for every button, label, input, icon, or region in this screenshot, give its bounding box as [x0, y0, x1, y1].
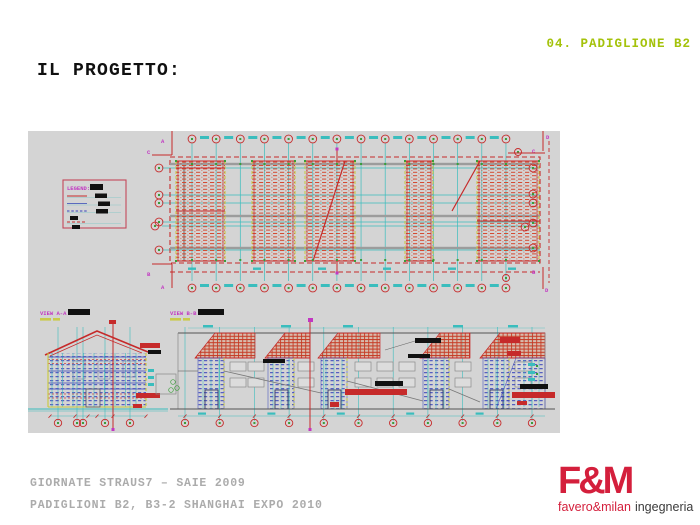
- grid-circle-letter: [219, 422, 221, 424]
- grid-circle-letter: [336, 138, 338, 140]
- cad-rect: [200, 136, 209, 139]
- cad-rect: [505, 163, 507, 165]
- grid-circle-letter: [524, 226, 526, 228]
- grid-circle-letter: [457, 138, 459, 140]
- elevation-view-a: VIEW A-A: [28, 309, 168, 431]
- grid-circle-letter: [496, 422, 498, 424]
- scale-note: [183, 318, 190, 321]
- tree-symbol: [171, 380, 176, 385]
- cjk-text-block: [263, 359, 285, 363]
- cad-rect: [433, 259, 435, 261]
- grid-circle-letter: [481, 138, 483, 140]
- cad-rect: [432, 160, 434, 162]
- section-tag: 04. PADIGLIONE B2: [546, 37, 691, 51]
- level-mark-red: [512, 392, 555, 398]
- grid-circle-letter: [505, 277, 507, 279]
- company-logo: F&M favero&milaningegneria: [558, 462, 700, 514]
- cjk-text-block: [148, 350, 161, 354]
- grid-circle-letter: [408, 138, 410, 140]
- grid-circle-letter: [336, 287, 338, 289]
- grid-circle-letter: [288, 422, 290, 424]
- grid-circle-letter: [158, 194, 160, 196]
- tree-symbol: [169, 388, 174, 393]
- cad-rect: [417, 136, 426, 139]
- dim-text: [198, 413, 206, 415]
- grid-circle-letter: [532, 193, 534, 195]
- logo-wordmark: favero&milaningegneria: [558, 500, 700, 514]
- window: [455, 378, 471, 387]
- cad-rect: [248, 284, 257, 287]
- level-mark-red: [507, 351, 521, 356]
- footer: GIORNATE STRAUS7 – SAIE 2009 PADIGLIONI …: [30, 473, 323, 517]
- grid-circle-letter: [531, 422, 533, 424]
- section-marker: C: [532, 148, 536, 155]
- grid-circle-letter: [129, 422, 131, 424]
- grid-circle-letter: [358, 422, 360, 424]
- cad-rect: [490, 284, 499, 287]
- grid-circle-letter: [239, 287, 241, 289]
- cad-rect: [272, 136, 281, 139]
- cad-rect: [215, 163, 217, 165]
- cad-rect: [175, 260, 177, 262]
- scale-note: [40, 318, 51, 321]
- grid-circle-letter: [215, 138, 217, 140]
- roof-panel-hatch: [305, 161, 355, 261]
- cjk-text-block: [90, 184, 103, 190]
- view-b-label: VIEW B-B: [170, 310, 197, 317]
- grid-circle-letter: [433, 138, 435, 140]
- section-marker: A: [161, 284, 165, 291]
- dim-text: [281, 325, 291, 327]
- grid-circle-letter: [481, 287, 483, 289]
- grid-circle-letter: [57, 422, 59, 424]
- section-marker: A: [161, 138, 165, 145]
- window: [298, 362, 314, 371]
- cad-rect: [490, 136, 499, 139]
- cjk-text-block: [375, 381, 403, 386]
- grid-circle-letter: [191, 287, 193, 289]
- grid-circle-letter: [505, 138, 507, 140]
- cjk-text-block: [72, 225, 80, 229]
- grid-circle-letter: [215, 287, 217, 289]
- grid-circle-letter: [408, 287, 410, 289]
- grid-circle-letter: [312, 138, 314, 140]
- cad-rect: [224, 160, 226, 162]
- level-mark-red: [345, 389, 407, 395]
- plan-dim-text: [448, 268, 456, 270]
- grid-circle-letter: [532, 247, 534, 249]
- plan-dim-text: [188, 268, 196, 270]
- cad-rect: [251, 260, 253, 262]
- dim-text: [148, 369, 154, 372]
- legend-box: LEGEND:: [63, 180, 126, 229]
- grid-circle-letter: [312, 287, 314, 289]
- cad-rect: [345, 136, 354, 139]
- cad-rect: [360, 163, 362, 165]
- cad-rect: [384, 163, 386, 165]
- grid-circle-letter: [191, 138, 193, 140]
- cad-rect: [239, 259, 241, 261]
- scale-note: [53, 318, 60, 321]
- cad-rect: [224, 284, 233, 287]
- slide: 04. PADIGLIONE B2 IL PROGETTO: ACBADCBDL…: [0, 0, 700, 525]
- roof-panel-elev: [318, 333, 380, 358]
- cad-rect: [321, 136, 330, 139]
- cad-rect: [354, 160, 356, 162]
- logo-name-red: favero&milan: [558, 500, 631, 514]
- leader-line: [385, 341, 415, 350]
- plan-dim-text: [253, 268, 261, 270]
- section-marker: B: [147, 271, 151, 278]
- dim-text: [406, 413, 414, 415]
- plan-dim-text: [508, 268, 516, 270]
- cad-rect: [536, 365, 538, 367]
- cad-rect: [288, 259, 290, 261]
- cjk-text-block: [520, 384, 548, 389]
- cad-rect: [251, 160, 253, 162]
- cad-rect: [408, 259, 410, 261]
- section-marker: D: [546, 134, 550, 141]
- cjk-text-block: [70, 216, 78, 220]
- cjk-text-block: [95, 194, 107, 199]
- dim-text: [528, 363, 535, 366]
- grid-circle-letter: [457, 287, 459, 289]
- section-marker: D: [545, 287, 549, 294]
- cjk-text-block: [68, 309, 90, 315]
- level-mark-red: [140, 343, 160, 348]
- cad-rect: [175, 160, 177, 162]
- cad-rect: [404, 160, 406, 162]
- roof-panel-hatch: [252, 161, 295, 261]
- level-mark-red: [500, 337, 520, 343]
- cad-rect: [336, 148, 339, 151]
- cad-rect: [224, 136, 233, 139]
- grid-circle-letter: [158, 202, 160, 204]
- dim-text: [148, 376, 154, 379]
- cad-rect: [336, 163, 338, 165]
- section-marker: B: [532, 269, 536, 276]
- cad-rect: [457, 163, 459, 165]
- dim-text: [343, 325, 353, 327]
- grid-circle-letter: [360, 287, 362, 289]
- cad-rect: [248, 136, 257, 139]
- cad-rect: [312, 163, 314, 165]
- plan-dim-text: [383, 268, 391, 270]
- cad-rect: [393, 284, 402, 287]
- cad-rect: [309, 428, 312, 431]
- roof-panel-hatch: [405, 161, 433, 261]
- dim-text: [337, 413, 345, 415]
- footer-line2: PADIGLIONI B2, B3-2 SHANGHAI EXPO 2010: [30, 495, 323, 517]
- cad-rect: [538, 160, 540, 162]
- cad-rect: [272, 284, 281, 287]
- cad-rect: [297, 284, 306, 287]
- cad-rect: [215, 259, 217, 261]
- grid-circle-letter: [76, 422, 78, 424]
- cad-rect: [336, 259, 338, 261]
- view-a-label: VIEW A-A: [40, 310, 67, 317]
- cad-rect: [354, 260, 356, 262]
- page-title: IL PROGETTO:: [37, 61, 181, 81]
- grid-circle-letter: [158, 249, 160, 251]
- cad-rect: [417, 284, 426, 287]
- dim-text: [203, 325, 213, 327]
- cjk-text-block: [408, 354, 430, 358]
- roof-panel-elev: [195, 333, 255, 358]
- grid-circle-letter: [263, 287, 265, 289]
- cjk-text-block: [98, 202, 110, 207]
- grid-circle-letter: [462, 422, 464, 424]
- window: [377, 362, 393, 371]
- cad-canvas: ACBADCBDLEGEND:VIEW A-AVIEW B-B: [28, 131, 560, 433]
- cad-rect: [294, 260, 296, 262]
- cad-rect: [112, 428, 115, 431]
- cad-rect: [345, 284, 354, 287]
- cad-rect: [481, 259, 483, 261]
- window: [230, 362, 246, 371]
- cad-rect: [304, 160, 306, 162]
- cjk-text-block: [198, 309, 224, 315]
- dim-text: [528, 378, 535, 381]
- ramp-line: [449, 389, 480, 402]
- window: [455, 362, 471, 371]
- window: [399, 362, 415, 371]
- cad-rect: [433, 163, 435, 165]
- section-marker: C: [147, 149, 151, 156]
- grid-circle-letter: [532, 202, 534, 204]
- cad-rect: [442, 136, 451, 139]
- cad-rect: [476, 160, 478, 162]
- cad-rect: [536, 373, 538, 375]
- cad-rect: [442, 284, 451, 287]
- cad-rect: [294, 160, 296, 162]
- grid-circle-letter: [253, 422, 255, 424]
- cad-rect: [505, 259, 507, 261]
- grid-circle-letter: [505, 287, 507, 289]
- grid-circle-letter: [384, 287, 386, 289]
- tree-symbol: [175, 386, 180, 391]
- dim-text: [148, 383, 154, 386]
- window: [230, 378, 246, 387]
- level-mark-red: [517, 401, 527, 405]
- grid-circle-letter: [288, 138, 290, 140]
- grid-circle-letter: [239, 138, 241, 140]
- grid-circle-letter: [360, 138, 362, 140]
- cad-rect: [224, 260, 226, 262]
- cad-rect: [239, 163, 241, 165]
- grid-circle-letter: [392, 422, 394, 424]
- plan-dim-text: [318, 268, 326, 270]
- cad-drawing: ACBADCBDLEGEND:VIEW A-AVIEW B-B: [28, 131, 560, 433]
- dim-text: [508, 325, 518, 327]
- level-mark-red: [330, 402, 339, 407]
- grid-circle-letter: [532, 167, 534, 169]
- cad-rect: [321, 284, 330, 287]
- cad-rect: [481, 163, 483, 165]
- cad-rect: [404, 260, 406, 262]
- cad-rect: [369, 284, 378, 287]
- cad-rect: [393, 136, 402, 139]
- dim-text: [453, 325, 463, 327]
- plan-diagonal: [452, 161, 480, 211]
- legend-title: LEGEND:: [67, 185, 90, 192]
- grid-circle-letter: [427, 422, 429, 424]
- cad-rect: [408, 163, 410, 165]
- scale-note: [170, 318, 181, 321]
- cad-rect: [476, 260, 478, 262]
- cjk-text-block: [415, 338, 441, 343]
- dim-text: [267, 413, 275, 415]
- cad-rect: [191, 259, 193, 261]
- cjk-text-block: [96, 209, 108, 214]
- logo-name-dark: ingegneria: [635, 500, 693, 514]
- level-mark-red: [133, 404, 142, 408]
- cad-rect: [457, 259, 459, 261]
- footer-line1: GIORNATE STRAUS7 – SAIE 2009: [30, 473, 323, 495]
- grid-circle-letter: [158, 167, 160, 169]
- roof-plan-view: ACBADCBD: [147, 131, 550, 294]
- cad-rect: [538, 260, 540, 262]
- cad-rect: [336, 272, 339, 275]
- logo-mark: F&M: [558, 462, 700, 500]
- grid-circle-letter: [154, 225, 156, 227]
- window: [298, 378, 314, 387]
- window: [248, 362, 264, 371]
- dim-text: [528, 371, 535, 374]
- grid-circle-letter: [184, 422, 186, 424]
- grid-circle-letter: [433, 287, 435, 289]
- cad-rect: [191, 163, 193, 165]
- window: [355, 362, 371, 371]
- cad-rect: [297, 136, 306, 139]
- grid-circle-letter: [323, 422, 325, 424]
- section-flag: [308, 318, 313, 322]
- grid-circle-letter: [532, 222, 534, 224]
- grid-circle-letter: [158, 221, 160, 223]
- cad-rect: [360, 259, 362, 261]
- cad-rect: [263, 163, 265, 165]
- cad-rect: [288, 163, 290, 165]
- grid-circle-letter: [288, 287, 290, 289]
- cad-rect: [263, 259, 265, 261]
- grid-circle-letter: [384, 138, 386, 140]
- cad-rect: [466, 136, 475, 139]
- cad-rect: [200, 284, 209, 287]
- grid-circle-letter: [263, 138, 265, 140]
- window: [355, 378, 371, 387]
- cad-rect: [369, 136, 378, 139]
- cad-rect: [304, 260, 306, 262]
- roof-panel-elev: [265, 333, 310, 358]
- dim-text: [476, 413, 484, 415]
- elevation-view-b: VIEW B-B: [156, 309, 555, 431]
- cad-rect: [384, 259, 386, 261]
- cad-rect: [466, 284, 475, 287]
- cad-rect: [312, 259, 314, 261]
- grid-circle-letter: [104, 422, 106, 424]
- section-flag: [109, 320, 116, 324]
- grid-circle-letter: [82, 422, 84, 424]
